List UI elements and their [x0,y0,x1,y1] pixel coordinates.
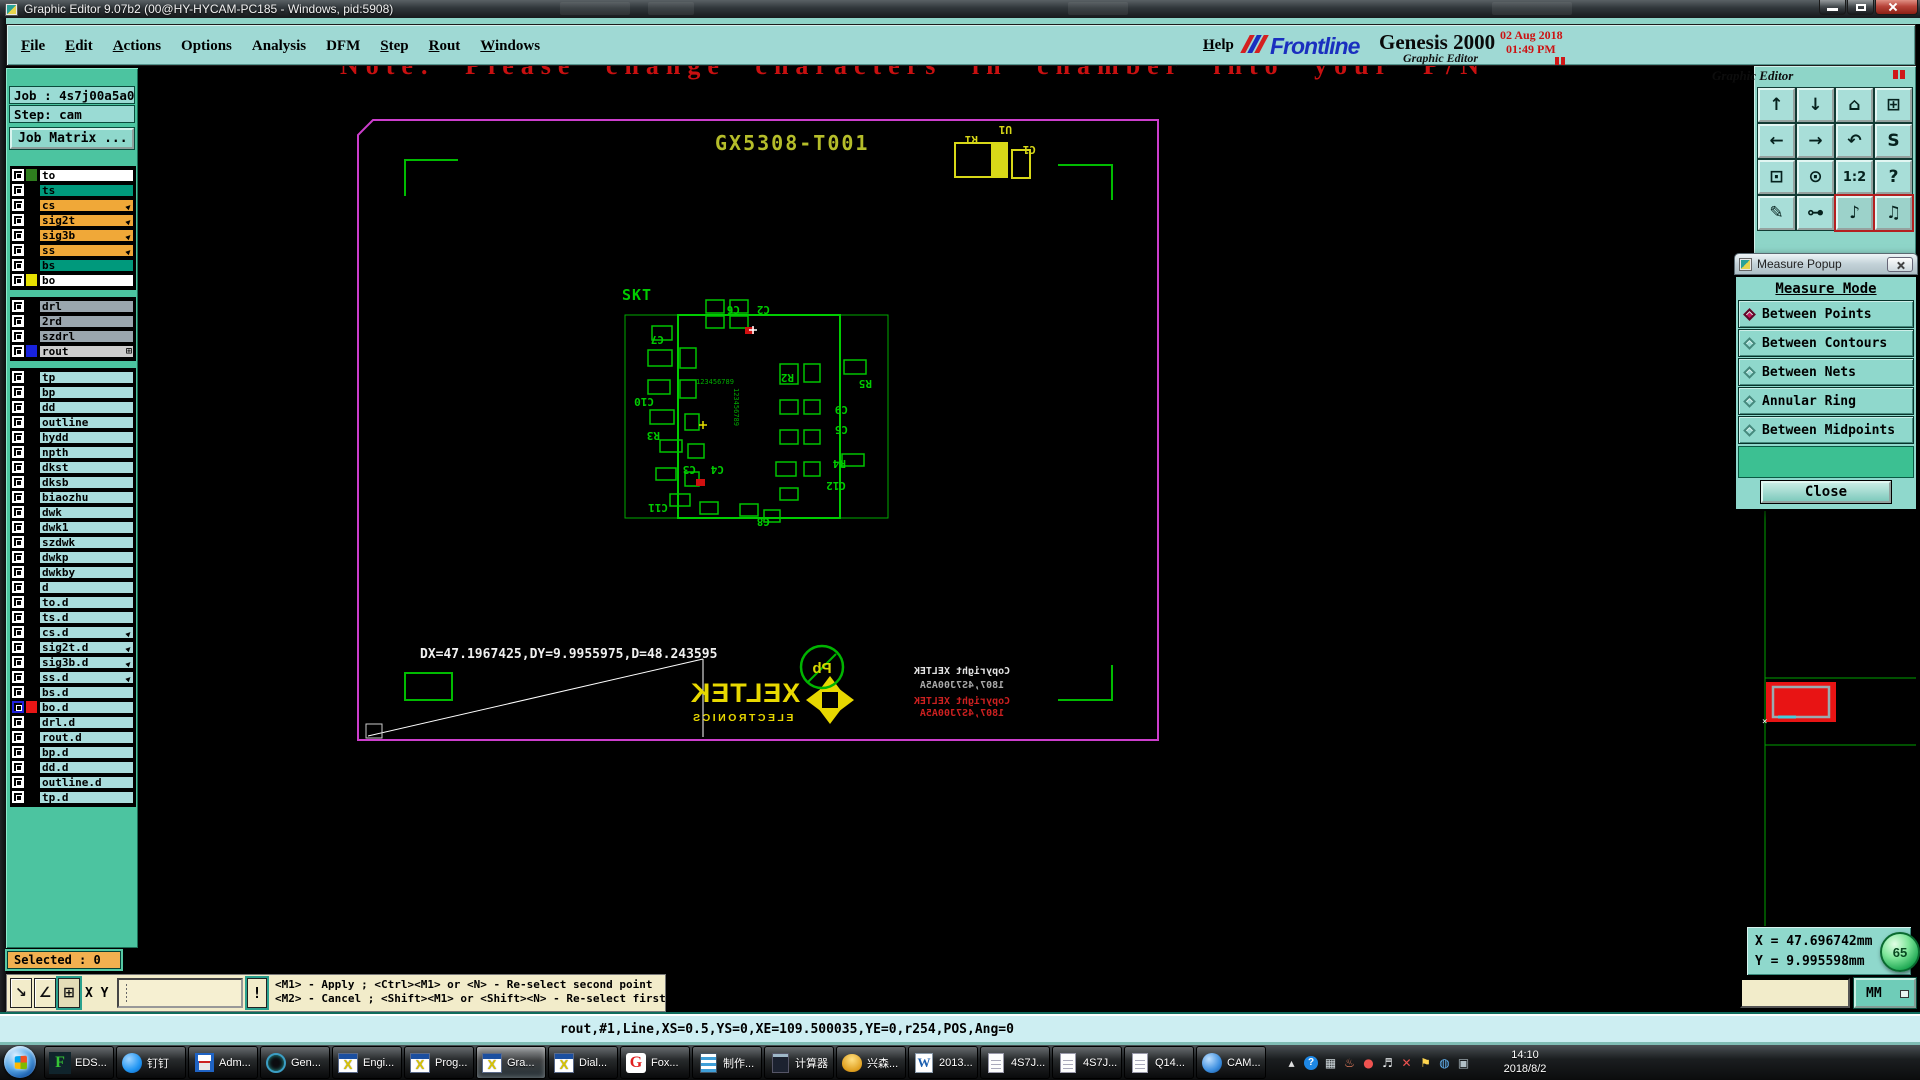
layer-name[interactable]: bo.d [39,701,134,714]
layer-checkbox[interactable] [12,566,24,578]
maximize-button[interactable] [1847,0,1874,15]
layer-name[interactable]: dwk [39,506,134,519]
layer-row-dwk1[interactable]: dwk1 [12,520,134,534]
layer-checkbox[interactable] [12,701,24,713]
layer-checkbox[interactable] [12,214,24,226]
logo-subtext: ELECTRONICS [691,712,794,724]
layer-name[interactable]: sig3b.d▶ [39,656,134,669]
layer-name[interactable]: sig2t▶ [39,214,134,227]
skt-label: SKT [622,286,652,304]
layer-name[interactable]: sig2t.d▶ [39,641,134,654]
layer-checkbox[interactable] [12,229,24,241]
menu-options[interactable]: Options [181,38,232,55]
measure-option-between-nets[interactable]: Between Nets [1738,358,1914,386]
taskbar-item-label: Gra... [507,1057,535,1069]
taskbar-item[interactable]: 制作... [692,1046,762,1079]
layer-checkbox[interactable] [12,345,24,357]
taskbar-item[interactable]: 计算器 [764,1046,834,1079]
layer-name[interactable]: dwkby [39,566,134,579]
layer-name[interactable]: biaozhu [39,491,134,504]
app-tray-icon-2[interactable]: ♨ [1340,1056,1359,1070]
layer-row-sig3b.d[interactable]: sig3b.d▶ [12,655,134,669]
status-tray-icon[interactable]: ● [1359,1056,1378,1070]
layer-name[interactable]: sig3b▶ [39,229,134,242]
system-tray: ▴?▦♨●♬✕⚑◍▣ [1282,1045,1473,1080]
taskbar-clock[interactable]: 14:10 2018/8/2 [1492,1048,1558,1076]
feature-arrow-icon: ▶ [123,245,134,256]
layer-row-dksb[interactable]: dksb [12,475,134,489]
grid-icon: ⊞ [126,346,132,357]
zoom-fit-button[interactable]: ⊡ [1758,160,1795,194]
xwin-icon: X [409,1052,431,1074]
component-ref-label: U1 [998,123,1012,136]
layer-checkbox[interactable] [12,761,24,773]
app-tray-icon[interactable]: ▦ [1321,1056,1340,1070]
layer-checkbox[interactable] [12,626,24,638]
layer-name[interactable]: to [39,169,134,182]
layer-color-swatch [26,686,37,698]
command-text: rout,#1,Line,XS=0.5,YS=0,XE=109.500035,Y… [560,1022,1014,1037]
layer-name[interactable]: rout⊞ [39,345,134,358]
layer-checkbox[interactable] [12,401,24,413]
snap-mode-icons: ↘∠⊞ [10,978,80,1008]
layer-checkbox[interactable] [12,199,24,211]
layer-row-tp[interactable]: tp [12,370,134,384]
layer-row-ss.d[interactable]: ss.d▶ [12,670,134,684]
measure-option-label: Between Points [1762,307,1872,322]
taskbar-item[interactable]: W2013... [908,1046,978,1079]
component-ref-label: C8 [757,515,770,528]
titlebar-thumbnail [560,2,630,15]
layer-row-dwk[interactable]: dwk [12,505,134,519]
layer-color-swatch [26,199,37,211]
layer-color-swatch [26,746,37,758]
taskbar-item-label: Fox... [651,1057,679,1069]
layer-row-bs[interactable]: bs [12,258,134,272]
layer-name[interactable]: outline [39,416,134,429]
menu-dfm[interactable]: DFM [326,38,360,55]
logo-text: XELTEK [690,678,801,708]
s-shape-button[interactable]: S [1875,124,1912,158]
taskbar-item-label: Adm... [219,1057,251,1069]
menu-file[interactable]: File [21,38,45,55]
taskbar-item-label: Gen... [291,1057,321,1069]
layer-name[interactable]: cs.d▶ [39,626,134,639]
layer-name[interactable]: bs [39,259,134,272]
flag-tray-icon[interactable]: ⚑ [1416,1056,1435,1070]
measure-option-between-contours[interactable]: Between Contours [1738,329,1914,357]
txt-icon [1057,1052,1079,1074]
eds-icon: F [49,1052,71,1074]
layer-row-outline[interactable]: outline [12,415,134,429]
layer-row-d[interactable]: d [12,580,134,594]
xy-input[interactable] [117,978,243,1008]
layer-name[interactable]: drl.d [39,716,134,729]
taskbar-item[interactable]: Adm... [188,1046,258,1079]
layer-row-dwkp[interactable]: dwkp [12,550,134,564]
layer-color-swatch [26,446,37,458]
component-ref-label: R4 [832,457,846,470]
fox-icon: G [625,1052,647,1074]
layer-color-swatch [26,416,37,428]
measure-option-between-points[interactable]: Between Points [1738,300,1914,328]
layer-row-bp[interactable]: bp [12,385,134,399]
layer-name[interactable]: szdrl [39,330,134,343]
taskbar-item[interactable]: Gen... [260,1046,330,1079]
layer-color-swatch [26,776,37,788]
measure-option-between-midpoints[interactable]: Between Midpoints [1738,416,1914,444]
app-icon [5,3,18,16]
layer-checkbox[interactable] [12,371,24,383]
layer-checkbox[interactable] [12,476,24,488]
layer-name[interactable]: bp [39,386,134,399]
taskbar-item[interactable]: XDial... [548,1046,618,1079]
help-tray-icon[interactable]: ? [1304,1056,1318,1070]
layer-color-swatch [26,476,37,488]
layer-checkbox[interactable] [12,551,24,563]
layer-checkbox[interactable] [12,521,24,533]
taskbar-item-label: Dial... [579,1057,607,1069]
layer-row-bo.d[interactable]: bo.d [12,700,134,714]
wdoc-icon: W [913,1052,935,1074]
layer-name[interactable]: dd [39,401,134,414]
popup-close-button[interactable]: Close [1761,481,1891,503]
measurement-text: DX=47.1967425,DY=9.9955975,D=48.243595 [420,647,717,662]
pin-numbers-vertical: 123456789 [732,388,740,426]
layer-color-swatch [26,656,37,668]
layer-checkbox[interactable] [12,386,24,398]
layer-checkbox[interactable] [12,671,24,683]
layer-color-swatch [26,581,37,593]
layer-name[interactable]: dksb [39,476,134,489]
media-tray-icon[interactable]: ♬ [1378,1056,1397,1070]
layer-row-dkst[interactable]: dkst [12,460,134,474]
undo-view-button[interactable]: ↶ [1836,124,1873,158]
layer-name[interactable]: dd.d [39,761,134,774]
windows-flag-icon [14,1055,26,1069]
measure-popup-titlebar[interactable]: Measure Popup [1734,253,1918,275]
brand-subtitle: Graphic Editor [1403,51,1478,66]
xwin-icon: X [337,1052,359,1074]
layer-checkbox[interactable] [12,244,24,256]
menu-step[interactable]: Step [380,38,408,55]
layer-row-sig2t[interactable]: sig2t▶ [12,213,134,227]
show-hidden-icons[interactable]: ▴ [1282,1056,1301,1070]
layer-sidebar: Job : 4s7j00a5a0 Step: cam Job Matrix ..… [6,68,138,948]
layer-row-hydd[interactable]: hydd [12,430,134,444]
layer-checkbox[interactable] [12,716,24,728]
taskbar-item[interactable]: XEngi... [332,1046,402,1079]
minimize-button[interactable] [1819,0,1846,15]
start-button[interactable] [4,1046,36,1078]
units-button[interactable]: MM [1854,978,1916,1008]
layer-color-swatch [26,345,37,357]
taskbar-item[interactable]: 钉钉 [116,1046,186,1079]
layer-stack-a-button[interactable]: ♪ [1836,196,1873,230]
clock-time: 14:10 [1492,1048,1558,1062]
measure-option-label: Between Contours [1762,336,1887,351]
layer-name[interactable]: dkst [39,461,134,474]
layer-row-ts[interactable]: ts [12,183,134,197]
layer-row-sig2t.d[interactable]: sig2t.d▶ [12,640,134,654]
measure-option-annular-ring[interactable]: Annular Ring [1738,387,1914,415]
layer-checkbox[interactable] [12,169,24,181]
layer-checkbox[interactable] [12,536,24,548]
layer-checkbox[interactable] [12,746,24,758]
taskbar-item[interactable]: GFox... [620,1046,690,1079]
titlebar-thumbnail [648,2,694,15]
brand-time: 01:49 PM [1506,42,1556,57]
pcb-drawing: 123456789 123456789 DX=47.1967425,DY=9.9… [140,66,1916,950]
component-ref-label: R2 [781,371,794,384]
layer-checkbox[interactable] [12,274,24,286]
job-matrix-button[interactable]: Job Matrix ... [10,128,134,149]
layer-color-swatch [26,169,37,181]
diag-line-mode-button[interactable]: ↘ [10,978,32,1008]
layer-color-swatch [26,431,37,443]
xeltek-logo: XELTEK ELECTRONICS [690,676,854,724]
feature-arrow-icon: ▶ [123,642,134,653]
layer-name[interactable]: ts.d [39,611,134,624]
xwin-icon: X [481,1052,503,1074]
layer-name[interactable]: ts [39,184,134,197]
confirm-button[interactable]: ! [247,978,267,1008]
layer-checkbox[interactable] [12,300,24,312]
layer-checkbox[interactable] [12,446,24,458]
pan-left-button[interactable]: ← [1758,124,1795,158]
layer-checkbox[interactable] [12,506,24,518]
layer-row-drl[interactable]: drl [12,299,134,313]
taskbar-item-label: 制作... [723,1055,754,1071]
layer-name[interactable]: ss▶ [39,244,134,257]
layer-name[interactable]: dwkp [39,551,134,564]
layer-row-cs.d[interactable]: cs.d▶ [12,625,134,639]
taskbar-item[interactable]: XProg... [404,1046,474,1079]
origin-cross-icon [699,421,707,429]
layer-checkbox[interactable] [12,416,24,428]
layer-name[interactable]: rout.d [39,731,134,744]
feature-arrow-icon: ▶ [123,657,134,668]
layer-row-outline.d[interactable]: outline.d [12,775,134,789]
hint-line-2: <M2> - Cancel ; <Shift><M1> or <Shift><N… [275,992,663,1006]
layer-checkbox[interactable] [12,641,24,653]
coordinate-input[interactable] [1740,978,1850,1008]
zoom-ratio-button[interactable]: 1:2 [1836,160,1873,194]
layer-color-swatch [26,184,37,196]
measure-popup-title: Measure Popup [1757,257,1887,271]
pan-down-button[interactable]: ↓ [1797,88,1834,122]
layer-checkbox[interactable] [12,184,24,196]
component-ref-label: C3 [683,463,696,476]
measure-option-label: Annular Ring [1762,394,1856,409]
network-tray-icon[interactable]: ◍ [1435,1056,1454,1070]
layer-name[interactable]: tp.d [39,791,134,804]
layer-color-swatch [26,551,37,563]
window-xy-button[interactable]: ⊞ [1875,88,1912,122]
layer-row-bo[interactable]: bo [12,273,134,287]
layer-name[interactable]: bp.d [39,746,134,759]
layer-row-ts.d[interactable]: ts.d [12,610,134,624]
feature-arrow-icon: ▶ [123,215,134,226]
copyright-block: Copyright XELTEK1807,4S7J00A5ACopyright … [914,665,1010,719]
zoom-center-button[interactable]: ⊙ [1797,160,1834,194]
layer-name[interactable]: dwk1 [39,521,134,534]
grid-snap-mode-button[interactable]: ⊞ [58,978,80,1008]
radio-diamond-icon [1743,308,1756,321]
layer-checkbox[interactable] [12,259,24,271]
menu-edit[interactable]: Edit [65,38,93,55]
taskbar-item[interactable]: Q14... [1124,1046,1194,1079]
menu-windows[interactable]: Windows [480,38,540,55]
layer-name[interactable]: hydd [39,431,134,444]
pan-right-button[interactable]: → [1797,124,1834,158]
layer-color-swatch [26,491,37,503]
layer-checkbox[interactable] [12,776,24,788]
component-ref-label: C10 [634,395,654,408]
layer-name[interactable]: d [39,581,134,594]
menu-actions[interactable]: Actions [113,38,161,55]
hint-line-1: <M1> - Apply ; <Ctrl><M1> or <N> - Re-se… [275,978,663,992]
xwin-icon: X [553,1052,575,1074]
layer-checkbox[interactable] [12,731,24,743]
selected-count: Selected : 0 [7,951,121,969]
layer-checkbox[interactable] [12,596,24,608]
layer-name[interactable]: npth [39,446,134,459]
layer-row-cs[interactable]: cs▶ [12,198,134,212]
layer-row-bs.d[interactable]: bs.d [12,685,134,699]
layer-color-swatch [26,611,37,623]
layer-row-biaozhu[interactable]: biaozhu [12,490,134,504]
layer-color-swatch [26,761,37,773]
taskbar-item[interactable]: 兴森... [836,1046,906,1079]
layer-row-szdwk[interactable]: szdwk [12,535,134,549]
angle-snap-mode-button[interactable]: ∠ [34,978,56,1008]
menu-help[interactable]: Help [1203,37,1234,54]
layer-row-bp.d[interactable]: bp.d [12,745,134,759]
pan-up-button[interactable]: ↑ [1758,88,1795,122]
layer-checkbox[interactable] [12,461,24,473]
layer-row-sig3b[interactable]: sig3b▶ [12,228,134,242]
menu-analysis[interactable]: Analysis [252,38,306,55]
taskbar-item-label: 计算器 [795,1055,828,1071]
component-ref-label: C12 [826,479,846,492]
taskbar-item-label: 2013... [939,1057,973,1069]
volume-tray-icon[interactable]: ▣ [1454,1056,1473,1070]
error-tray-icon[interactable]: ✕ [1397,1056,1416,1070]
pcb-canvas[interactable]: Note: Please change characters in chambe… [140,66,1916,950]
taskbar-item-label: CAM... [1227,1057,1261,1069]
layer-checkbox[interactable] [12,431,24,443]
close-button[interactable] [1875,0,1918,15]
layer-color-swatch [26,716,37,728]
job-label: Job : 4s7j00a5a0 [9,86,135,104]
layer-row-dd[interactable]: dd [12,400,134,414]
layer-name[interactable]: bo [39,274,134,287]
titlebar-thumbnail [1492,2,1572,15]
layer-name[interactable]: ss.d▶ [39,671,134,684]
frontline-logo-stripes-icon [1245,35,1267,55]
layer-row-to.d[interactable]: to.d [12,595,134,609]
measurement-overlay: DX=47.1967425,DY=9.9955975,D=48.243595 [366,647,717,738]
layer-stack-b-button[interactable]: ♫ [1875,196,1912,230]
layer-name[interactable]: bs.d [39,686,134,699]
layer-row-2rd[interactable]: 2rd [12,314,134,328]
layer-checkbox[interactable] [12,491,24,503]
taskbar-item[interactable]: FEDS... [44,1046,114,1079]
layer-name[interactable]: drl [39,300,134,313]
layer-row-szdrl[interactable]: szdrl [12,329,134,343]
copyright-text: 1807,4S7J00A5A [920,680,1004,691]
taskbar-item[interactable]: 4S7J... [1052,1046,1122,1079]
feature-arrow-icon: ▶ [123,200,134,211]
layer-checkbox[interactable] [12,581,24,593]
layer-row-dd.d[interactable]: dd.d [12,760,134,774]
layer-checkbox[interactable] [12,791,24,803]
component-ref-label: C6 [726,303,740,316]
layer-checkbox[interactable] [12,611,24,623]
home-view-button[interactable]: ⌂ [1836,88,1873,122]
layer-group: drl2rdszdrlrout⊞ [10,297,136,361]
net-node-tool-button[interactable]: ⊶ [1797,196,1834,230]
help-tool-button[interactable]: ? [1875,160,1912,194]
layer-row-rout.d[interactable]: rout.d [12,730,134,744]
component-ref-label: R1 [964,133,978,146]
layer-row-npth[interactable]: npth [12,445,134,459]
layer-row-rout[interactable]: rout⊞ [12,344,134,358]
edit-tools-button[interactable]: ✎ [1758,196,1795,230]
window-titlebar[interactable]: Graphic Editor 9.07b2 (00@HY-HYCAM-PC185… [0,0,1920,18]
layer-name[interactable]: tp [39,371,134,384]
layer-name[interactable]: cs▶ [39,199,134,212]
layer-row-to[interactable]: to [12,168,134,182]
layer-group: tpbpddoutlinehyddnpthdkstdksbbiaozhudwkd… [10,368,136,807]
layer-name[interactable]: outline.d [39,776,134,789]
menu-rout[interactable]: Rout [429,38,461,55]
units-label: MM [1866,986,1882,1001]
layer-color-swatch [26,731,37,743]
layer-row-tp.d[interactable]: tp.d [12,790,134,804]
layer-checkbox[interactable] [12,315,24,327]
layer-color-swatch [26,315,37,327]
layer-checkbox[interactable] [12,656,24,668]
feature-arrow-icon: ▶ [123,230,134,241]
layer-row-drl.d[interactable]: drl.d [12,715,134,729]
board-title: GX5308-T001 [715,131,869,155]
layer-name[interactable]: to.d [39,596,134,609]
layer-row-dwkby[interactable]: dwkby [12,565,134,579]
brand-date: 02 Aug 2018 [1500,28,1563,43]
layer-checkbox[interactable] [12,330,24,342]
popup-spacer [1738,446,1914,478]
panel-subtitle: Graphic Editor [1712,68,1793,84]
taskbar-item[interactable]: 4S7J... [980,1046,1050,1079]
layer-name[interactable]: 2rd [39,315,134,328]
taskbar-item-label: 4S7J... [1083,1057,1117,1069]
preview-panel: × [1762,508,1916,926]
measure-popup-close-icon[interactable] [1887,257,1913,272]
layer-name[interactable]: szdwk [39,536,134,549]
measure-popup-icon [1739,258,1752,271]
taskbar-item[interactable]: XGra... [476,1046,546,1079]
radio-diamond-icon [1743,366,1756,379]
copyright-text: Copyright XELTEK [914,695,1010,707]
layer-row-ss[interactable]: ss▶ [12,243,134,257]
measure-mode-options: Between PointsBetween ContoursBetween Ne… [1738,300,1914,444]
layer-color-swatch [26,521,37,533]
taskbar-item[interactable]: CAM... [1196,1046,1266,1079]
layer-color-swatch [26,401,37,413]
layer-checkbox[interactable] [12,686,24,698]
